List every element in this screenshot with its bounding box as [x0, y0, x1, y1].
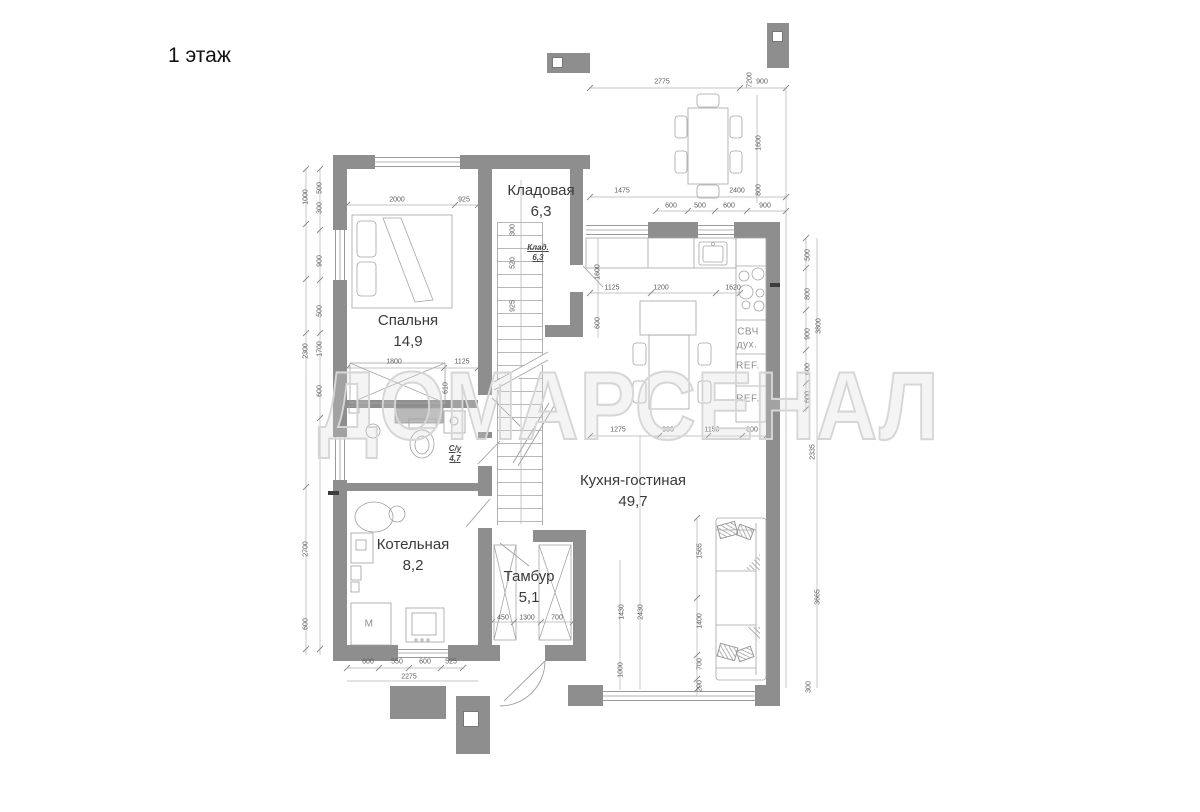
- dim-label: 2400: [729, 188, 745, 195]
- dim-label: 600: [317, 385, 324, 397]
- room-label: Кухня-гостиная49,7: [580, 470, 686, 512]
- dim-label: 925: [458, 197, 470, 204]
- dim-label: 800: [805, 288, 812, 300]
- room-name: Тамбур: [504, 566, 555, 587]
- dim-label: 600: [303, 618, 310, 630]
- dim-label: 900: [805, 328, 812, 340]
- room-name: Котельная: [377, 534, 450, 555]
- dim-label: 925: [510, 300, 517, 312]
- room-name: С/у: [449, 444, 461, 454]
- room-area: 5,1: [504, 587, 555, 608]
- dim-label: 600: [746, 427, 758, 434]
- dim-label: 500: [805, 249, 812, 261]
- dim-label: 1150: [704, 427, 719, 434]
- room-area: 14,9: [378, 331, 438, 352]
- dim-label: 600: [665, 203, 677, 210]
- dim-label: 2000: [389, 197, 405, 204]
- dim-label: 600: [723, 203, 735, 210]
- dim-label: 1600: [595, 264, 602, 280]
- appliance-label: REF.: [736, 361, 760, 372]
- small-room-label: Клад.6,3: [527, 243, 549, 263]
- dim-label: 900: [662, 427, 674, 434]
- dim-label: 1600: [756, 135, 763, 151]
- room-label: Котельная8,2: [377, 534, 450, 576]
- dim-label: 2700: [303, 541, 310, 557]
- room-area: 4,7: [449, 454, 461, 464]
- dim-label: 700: [697, 658, 704, 670]
- dim-label: 900: [317, 255, 324, 267]
- dim-label: 525: [445, 659, 457, 666]
- dim-label: 600: [419, 659, 431, 666]
- dim-label: 800: [756, 184, 763, 196]
- dim-label: 900: [759, 203, 771, 210]
- dim-label: 1565: [697, 543, 704, 559]
- dim-label: 1200: [653, 285, 669, 292]
- small-room-label: С/у4,7: [449, 444, 461, 464]
- dim-label: 1475: [614, 188, 630, 195]
- dim-label: 2335: [810, 444, 817, 460]
- room-name: Кладовая: [507, 180, 574, 201]
- dim-label: 1620: [725, 285, 741, 292]
- dim-label: 1275: [610, 427, 626, 434]
- room-area: 6,3: [527, 253, 549, 263]
- dim-label: 200: [697, 680, 704, 692]
- bathroom-fixtures: [349, 406, 465, 458]
- dim-label: 1125: [604, 285, 619, 292]
- room-name: Клад.: [527, 243, 549, 253]
- dim-label: 520: [510, 257, 517, 269]
- plan-linework: [0, 0, 1200, 812]
- dim-label: 3800: [816, 318, 823, 334]
- dim-label: 500: [317, 305, 324, 317]
- dim-label: 300: [510, 224, 517, 236]
- room-area: 8,2: [377, 555, 450, 576]
- room-name: Спальня: [378, 310, 438, 331]
- room-label: Тамбур5,1: [504, 566, 555, 608]
- kitchen-island: [633, 301, 711, 409]
- dim-label: 1800: [386, 359, 402, 366]
- dim-label: 600: [805, 363, 812, 375]
- floor-plan: 1 этаж: [0, 0, 1200, 812]
- dim-label: 600: [362, 659, 374, 666]
- dim-label: 300: [317, 202, 324, 214]
- sofa: [716, 518, 766, 680]
- dim-label: 500: [317, 182, 324, 194]
- appliance-label: REF.: [736, 394, 760, 405]
- room-label: Спальня14,9: [378, 310, 438, 352]
- room-name: Кухня-гостиная: [580, 470, 686, 491]
- dim-label: 450: [497, 615, 509, 622]
- dim-label: 1430: [619, 604, 626, 620]
- dim-label: 7200: [747, 72, 754, 88]
- dim-label: 500: [694, 203, 706, 210]
- dim-label: 600: [805, 391, 812, 403]
- dim-label: 550: [391, 659, 403, 666]
- dim-label: 900: [756, 79, 768, 86]
- dim-label: 1700: [317, 341, 324, 357]
- dim-label: 1000: [618, 662, 625, 678]
- appliance-label: М: [365, 619, 374, 630]
- dim-label: 2775: [654, 79, 670, 86]
- room-area: 6,3: [507, 201, 574, 222]
- dim-label: 3665: [815, 589, 822, 605]
- appliance-label: дух.: [737, 340, 758, 351]
- dim-label: 1400: [697, 613, 704, 629]
- dim-label: 1000: [303, 189, 310, 205]
- room-area: 49,7: [580, 491, 686, 512]
- terrace-table: [675, 94, 742, 198]
- dim-label: 700: [551, 615, 563, 622]
- dim-label: 600: [595, 317, 602, 329]
- room-label: Кладовая6,3: [507, 180, 574, 222]
- dim-label: 610: [443, 382, 450, 394]
- dim-label: 2275: [401, 674, 417, 681]
- dim-label: 2300: [303, 343, 310, 359]
- dim-label: 2430: [638, 604, 645, 620]
- dim-label: 1300: [519, 615, 535, 622]
- bed: [352, 215, 452, 308]
- dim-label: 1125: [454, 359, 469, 366]
- dim-label: 300: [806, 681, 813, 693]
- appliance-label: СВЧ: [737, 327, 759, 338]
